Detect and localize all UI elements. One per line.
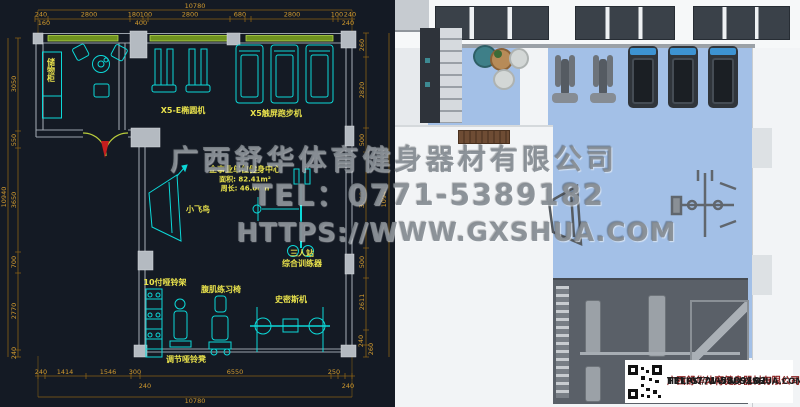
dim-right-total: 10940 <box>380 187 388 208</box>
three-person-station-3d <box>670 165 740 250</box>
label-elliptical: X5-E椭圆机 <box>161 105 206 115</box>
treadmill-3d <box>708 46 738 108</box>
dim-bottom-1: 1414 <box>57 368 74 376</box>
company-info-box: 广西舒华体育健身器材有限公司 TEL:0771-5389182 HTTPS://… <box>625 360 793 403</box>
strength-machine-3d <box>585 366 601 402</box>
label-treadmill: X5触屏跑步机 <box>250 108 302 118</box>
company-url: HTTPS://WWW.GXSHUA.COM <box>667 376 800 388</box>
dim-right-3: 3749 <box>358 192 366 209</box>
dim-top-1: 2800 <box>81 11 98 19</box>
cad-windows <box>48 36 333 42</box>
cad-entrance-door <box>83 133 128 158</box>
dim-right-5: 2611 <box>358 294 366 311</box>
dim-bottom-3: 300 <box>129 368 141 376</box>
dim-right-0: 260 <box>358 39 366 51</box>
dim-top-2: 180 <box>128 11 140 19</box>
smith-machine-3d <box>690 300 749 369</box>
label-center-title: 企事业单位健身中心 <box>208 164 281 174</box>
dim-bottom-0: 240 <box>35 368 47 376</box>
wall-pillar-3d <box>752 128 772 168</box>
dim-bottom-5: 250 <box>328 368 340 376</box>
window-strip-3 <box>693 6 790 40</box>
adjustable-bench-plan <box>170 299 191 347</box>
cad-floorplan-panel: 10780 240 2800 180 100 2800 680 2800 100… <box>0 0 395 407</box>
label-smith: 史密斯机 <box>275 294 307 304</box>
corridor-exterior <box>395 125 553 407</box>
dim-top-4: 2800 <box>182 11 199 19</box>
elliptical-3d <box>552 53 578 103</box>
dumbbell-rack-plan <box>146 289 162 357</box>
ab-chair-plan <box>209 296 231 355</box>
entrance-doormat-3d <box>458 130 510 144</box>
dim-left-1: 550 <box>10 134 18 146</box>
elliptical-machines-plan <box>152 49 210 92</box>
strength-machine-3d <box>648 295 666 357</box>
dim-bottom-2: 1546 <box>100 368 117 376</box>
label-center-area: 面积: 82.41m² <box>219 175 271 184</box>
label-station-1: 三人站 <box>290 248 314 258</box>
dim-right-6: 240 <box>357 335 365 347</box>
dim-left-total: 10940 <box>0 187 8 208</box>
smith-machine-plan <box>250 307 330 352</box>
chair-grey-3d <box>493 69 515 90</box>
treadmill-3d <box>628 46 658 108</box>
dim-top-3: 100 <box>140 11 152 19</box>
label-dumbbell-rack: 10付哑铃架 <box>143 277 186 287</box>
dim-top-total: 10780 <box>185 2 206 10</box>
dim-right-1: 2820 <box>358 82 366 99</box>
treadmill-3d <box>668 46 698 108</box>
fly-machine-3d <box>545 182 590 252</box>
cad-drawing: 10780 240 2800 180 100 2800 680 2800 100… <box>0 0 395 407</box>
label-station-2: 综合训练器 <box>282 258 323 268</box>
dim-right-2: 500 <box>358 134 366 146</box>
dim-bottom-sub-1: 240 <box>342 382 354 390</box>
window-strip-2 <box>575 6 675 40</box>
strength-machine-3d <box>585 300 601 354</box>
dim-left-5: 240 <box>10 347 18 359</box>
dim-top-8: 240 <box>344 11 356 19</box>
dim-left-3: 700 <box>10 256 18 268</box>
label-center-perimeter: 周长: 46.08m <box>221 184 270 193</box>
cad-dimension-lines <box>8 10 389 397</box>
chair-grey-3d <box>509 48 529 69</box>
dim-top-0: 240 <box>35 11 47 19</box>
storage-cabinet-3d-light <box>440 28 462 123</box>
table-plant-3d <box>494 50 502 58</box>
dim-right-4: 500 <box>358 256 366 268</box>
qr-code <box>627 364 663 400</box>
dim-top-sub-0: 160 <box>38 19 50 27</box>
dim-bottom-total: 10780 <box>185 397 206 405</box>
label-ab-chair: 腹肌练习椅 <box>200 284 241 294</box>
gym-plan-screenshot: 10780 240 2800 180 100 2800 680 2800 100… <box>0 0 800 407</box>
dim-left-0: 3050 <box>10 76 18 93</box>
dim-top-sub-2: 240 <box>342 19 354 27</box>
dim-top-7: 100 <box>331 11 343 19</box>
storage-cabinet-3d-dark <box>420 28 440 123</box>
render-3d-panel: 广西舒华体育健身器材有限公司 TEL:0771-5389182 HTTPS://… <box>395 0 800 407</box>
cad-equipment <box>43 43 334 357</box>
fly-machine-plan <box>149 165 187 241</box>
table-and-chairs-plan <box>72 43 128 97</box>
dim-top-6: 2800 <box>284 11 301 19</box>
cabinet-item <box>425 82 430 87</box>
dim-left-4: 2770 <box>10 303 18 320</box>
cad-dimension-texts: 10780 240 2800 180 100 2800 680 2800 100… <box>0 2 388 405</box>
door-marker <box>101 141 109 158</box>
dim-bottom-4: 6550 <box>227 368 244 376</box>
label-fly: 小飞鸟 <box>185 204 210 214</box>
dim-top-sub-1: 400 <box>135 19 147 27</box>
dim-top-5: 680 <box>234 11 246 19</box>
dim-left-2: 3650 <box>10 192 18 209</box>
label-storage: 储物柜 <box>47 57 56 83</box>
treadmills-plan <box>236 45 333 103</box>
label-adj-bench: 调节哑铃凳 <box>166 354 207 364</box>
right-wall <box>752 48 800 407</box>
cabinet-item <box>425 58 430 63</box>
dim-bottom-sub-0: 240 <box>139 382 151 390</box>
wall-pillar-3d <box>752 255 772 295</box>
dumbbell-rack-3d <box>556 286 569 398</box>
elliptical-3d <box>590 53 616 103</box>
dim-right-7: 260 <box>367 343 375 355</box>
